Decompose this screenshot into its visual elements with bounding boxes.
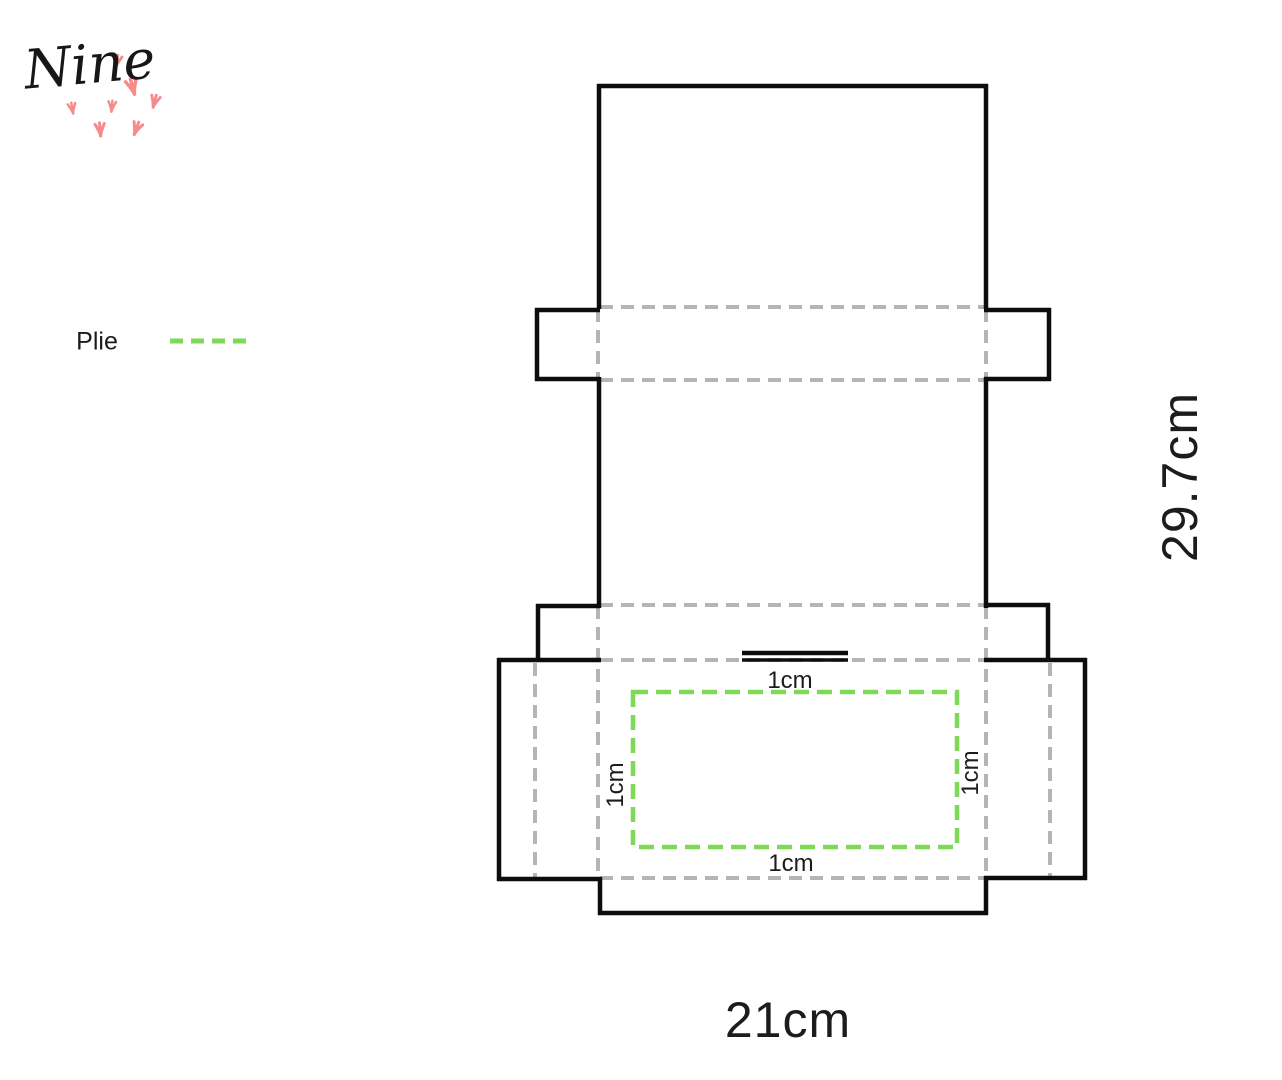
dimension-width-label: 21cm <box>725 991 851 1049</box>
green-fold-rect <box>633 692 957 847</box>
thumb-slot-cut <box>742 653 848 660</box>
dieline-diagram <box>0 0 1282 1080</box>
legend-fold-label: Plie <box>76 328 118 357</box>
inset-right-label: 1cm <box>957 750 985 795</box>
inset-bottom-label: 1cm <box>768 850 813 878</box>
box-template-page: Nine Plie 21cm 29.7cm 1cm 1cm 1cm 1cm <box>0 0 1282 1080</box>
dimension-height-label: 29.7cm <box>1151 392 1209 562</box>
inset-left-label: 1cm <box>602 762 630 807</box>
logo-text: Nine <box>22 32 157 97</box>
cut-lines <box>497 84 1087 915</box>
inset-top-label: 1cm <box>767 667 812 695</box>
